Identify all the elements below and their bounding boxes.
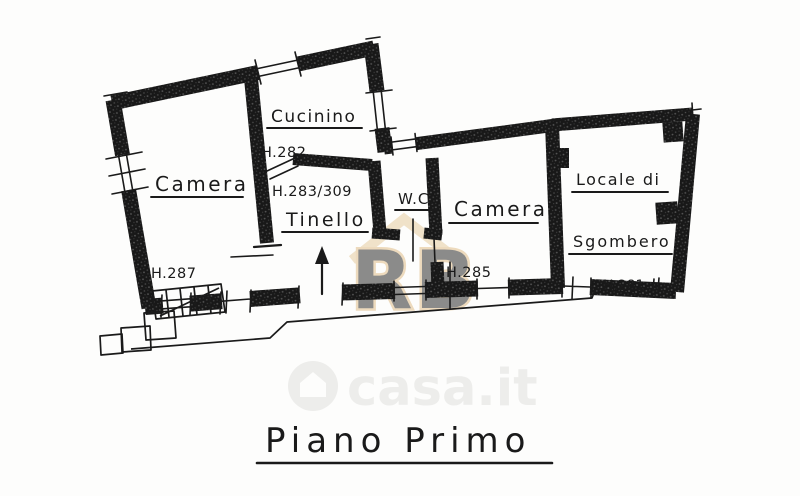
room-label-camera-left: Camera bbox=[155, 172, 249, 196]
casait-watermark-text: casa.it bbox=[347, 359, 538, 418]
height-label-h281: H.281 bbox=[603, 278, 644, 294]
height-label-h285: H.285 bbox=[446, 265, 491, 281]
floor-plan-drawing: casa.it RB bbox=[0, 0, 800, 496]
entrance-arrow-icon bbox=[315, 246, 329, 294]
room-label-locale-line1: Locale di bbox=[576, 170, 661, 189]
room-label-cucinino: Cucinino bbox=[271, 107, 356, 127]
height-label-h287: H.287 bbox=[151, 266, 196, 282]
room-label-tinello: Tinello bbox=[285, 209, 366, 231]
casait-watermark: casa.it bbox=[288, 359, 538, 418]
height-label-h282: H.282 bbox=[261, 145, 306, 161]
height-label-h283: H.283/309 bbox=[272, 184, 352, 200]
room-label-wc: W.C. bbox=[398, 190, 435, 208]
floor-plan-page: casa.it RB bbox=[0, 0, 800, 496]
plan-title: Piano Primo bbox=[257, 421, 552, 463]
plan-title-text: Piano Primo bbox=[265, 421, 531, 461]
room-labels: Camera Cucinino Tinello W.C. Camera Loca… bbox=[151, 107, 672, 254]
room-label-camera-right: Camera bbox=[454, 197, 548, 221]
room-label-locale-line2: Sgombero bbox=[573, 232, 671, 251]
